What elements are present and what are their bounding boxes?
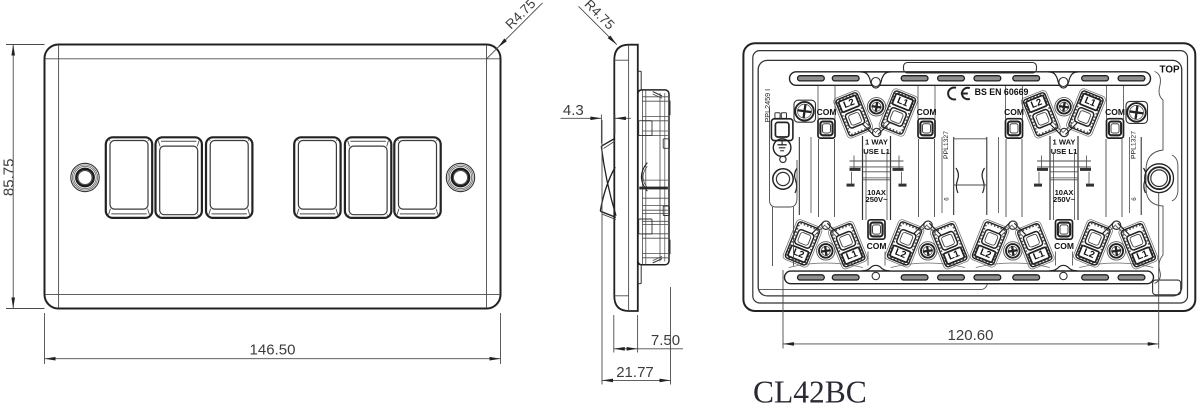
svg-text:COM: COM [917,107,937,117]
svg-text:CL42BC: CL42BC [753,375,867,409]
svg-text:1 WAY: 1 WAY [1053,138,1076,147]
svg-text:COM: COM [1054,241,1074,251]
svg-text:USE L1: USE L1 [1051,147,1078,156]
svg-text:COM: COM [817,107,837,117]
svg-text:4.3: 4.3 [563,102,584,119]
svg-text:USE L1: USE L1 [863,147,890,156]
svg-text:PPL1327: PPL1327 [1131,131,1138,159]
svg-text:COM: COM [1105,107,1125,117]
svg-text:1 WAY: 1 WAY [865,138,888,147]
svg-text:21.77: 21.77 [616,364,654,381]
svg-text:146.50: 146.50 [250,342,296,359]
svg-text:PPL2459 I: PPL2459 I [763,89,772,123]
svg-text:COM: COM [1004,107,1024,117]
svg-text:PPL1327: PPL1327 [943,131,950,159]
svg-text:85.75: 85.75 [0,159,17,197]
svg-text:TOP: TOP [1160,64,1180,75]
svg-text:COM: COM [867,241,887,251]
svg-text:120.60: 120.60 [948,327,994,344]
svg-text:250V~: 250V~ [1053,195,1076,204]
svg-text:250V~: 250V~ [866,195,889,204]
svg-text:BS EN 60669: BS EN 60669 [975,87,1029,97]
svg-text:7.50: 7.50 [651,332,680,349]
